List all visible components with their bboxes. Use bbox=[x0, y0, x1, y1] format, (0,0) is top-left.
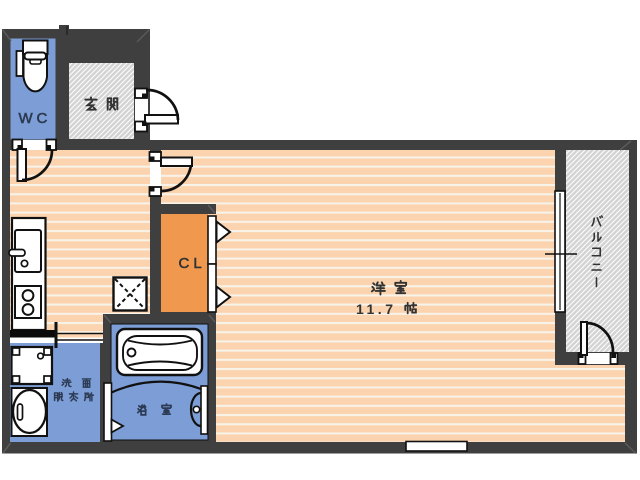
svg-text:CL: CL bbox=[179, 255, 206, 272]
svg-text:WC: WC bbox=[19, 110, 52, 127]
svg-text:11.7: 11.7 bbox=[356, 301, 396, 317]
